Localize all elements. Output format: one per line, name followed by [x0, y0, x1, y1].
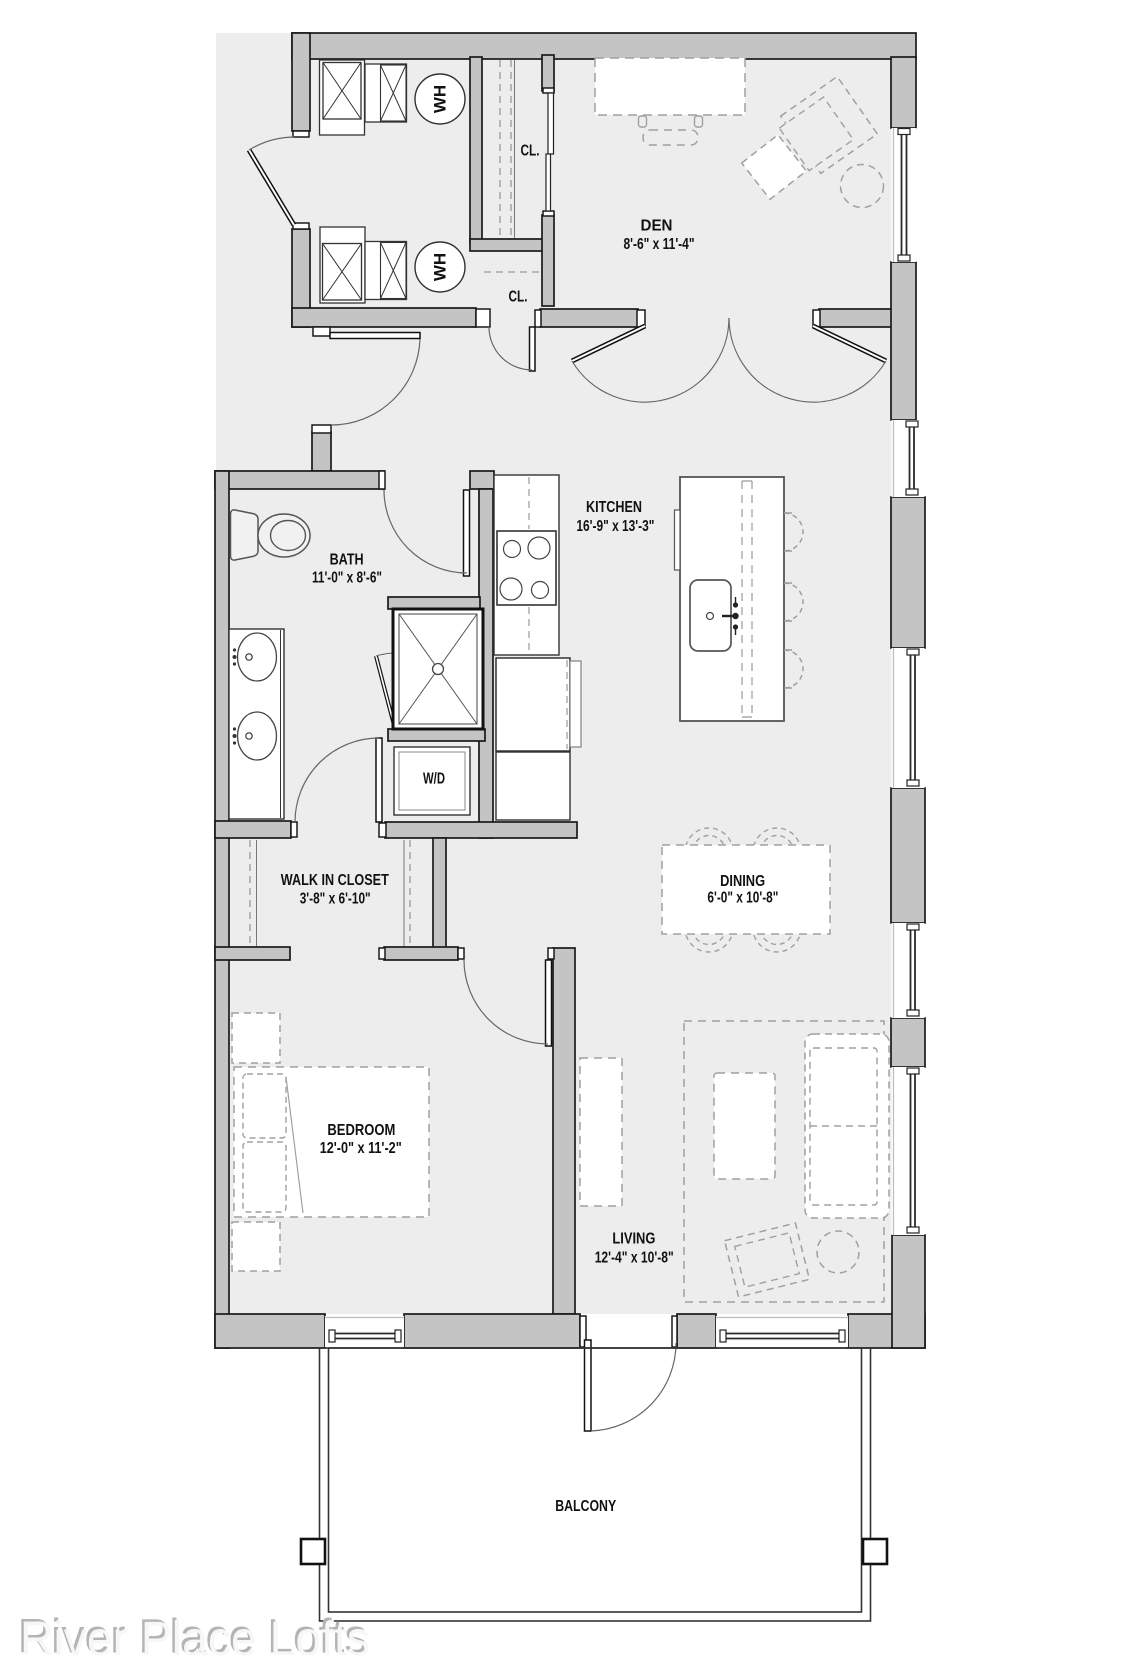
svg-text:KITCHEN: KITCHEN	[586, 499, 642, 516]
svg-text:LIVING: LIVING	[612, 1231, 655, 1248]
svg-text:12'-4" x 10'-8": 12'-4" x 10'-8"	[595, 1249, 674, 1266]
svg-text:WALK IN CLOSET: WALK IN CLOSET	[281, 872, 389, 889]
svg-text:6'-0" x 10'-8": 6'-0" x 10'-8"	[707, 889, 778, 906]
svg-text:WH: WH	[431, 253, 450, 281]
svg-text:BALCONY: BALCONY	[555, 1498, 617, 1515]
svg-text:CL.: CL.	[521, 143, 540, 160]
svg-text:WH: WH	[431, 85, 450, 113]
svg-text:BEDROOM: BEDROOM	[327, 1122, 395, 1139]
svg-text:CL.: CL.	[509, 289, 528, 306]
svg-text:DINING: DINING	[720, 873, 765, 890]
svg-text:8'-6" x 11'-4": 8'-6" x 11'-4"	[624, 236, 695, 253]
svg-text:BATH: BATH	[330, 552, 364, 569]
svg-text:16'-9" x 13'-3": 16'-9" x 13'-3"	[576, 518, 654, 535]
svg-text:12'-0" x 11'-2": 12'-0" x 11'-2"	[320, 1140, 402, 1157]
svg-text:River Place Lofts: River Place Lofts	[20, 1613, 370, 1666]
svg-text:DEN: DEN	[641, 218, 673, 235]
svg-text:3'-8" x 6'-10": 3'-8" x 6'-10"	[300, 890, 371, 907]
svg-text:W/D: W/D	[423, 771, 445, 788]
svg-text:11'-0" x 8'-6": 11'-0" x 8'-6"	[312, 570, 382, 587]
